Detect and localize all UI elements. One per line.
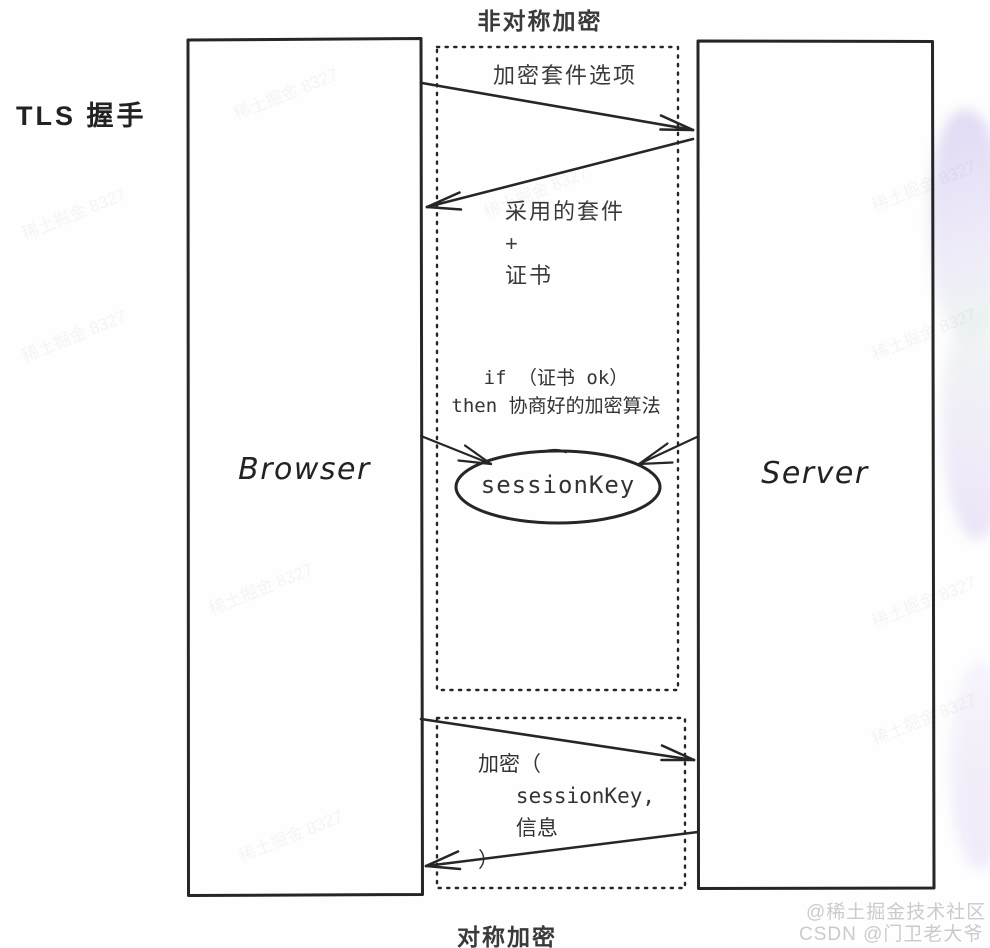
browser-node-label: Browser [187, 452, 422, 487]
symmetric-phase-title: 对称加密 [402, 918, 612, 948]
asymmetric-phase-title: 非对称加密 [440, 2, 640, 36]
arrow-server-to-sessionkey [639, 437, 698, 465]
arrowhead-icon [427, 207, 461, 210]
sessionkey-label: sessionKey [458, 471, 658, 499]
arrowhead-icon [661, 130, 694, 131]
site-watermark-line2: CSDN @门卫老大爷 [799, 919, 983, 946]
tls-handshake-label: TLS 握手 [16, 94, 147, 133]
arrow-browser-to-sessionkey [421, 436, 491, 464]
if-then-note: if （证书 ok） then 协商好的加密算法 [420, 364, 692, 420]
server-node-label: Server [697, 456, 933, 491]
arrow-cipher-options [422, 83, 693, 130]
arrowhead-icon [639, 463, 673, 465]
adopted-suite-label: 采用的套件 + 证书 [505, 196, 625, 292]
encrypt-call-label: 加密（ sessionKey, 信息 ） [478, 748, 655, 876]
arrowhead-icon [426, 866, 460, 869]
tls-handshake-diagram: 稀土掘金 8327 稀土掘金 8327 稀土掘金 8327 稀土掘金 8327 … [0, 0, 990, 948]
cipher-options-label: 加密套件选项 [455, 58, 675, 90]
